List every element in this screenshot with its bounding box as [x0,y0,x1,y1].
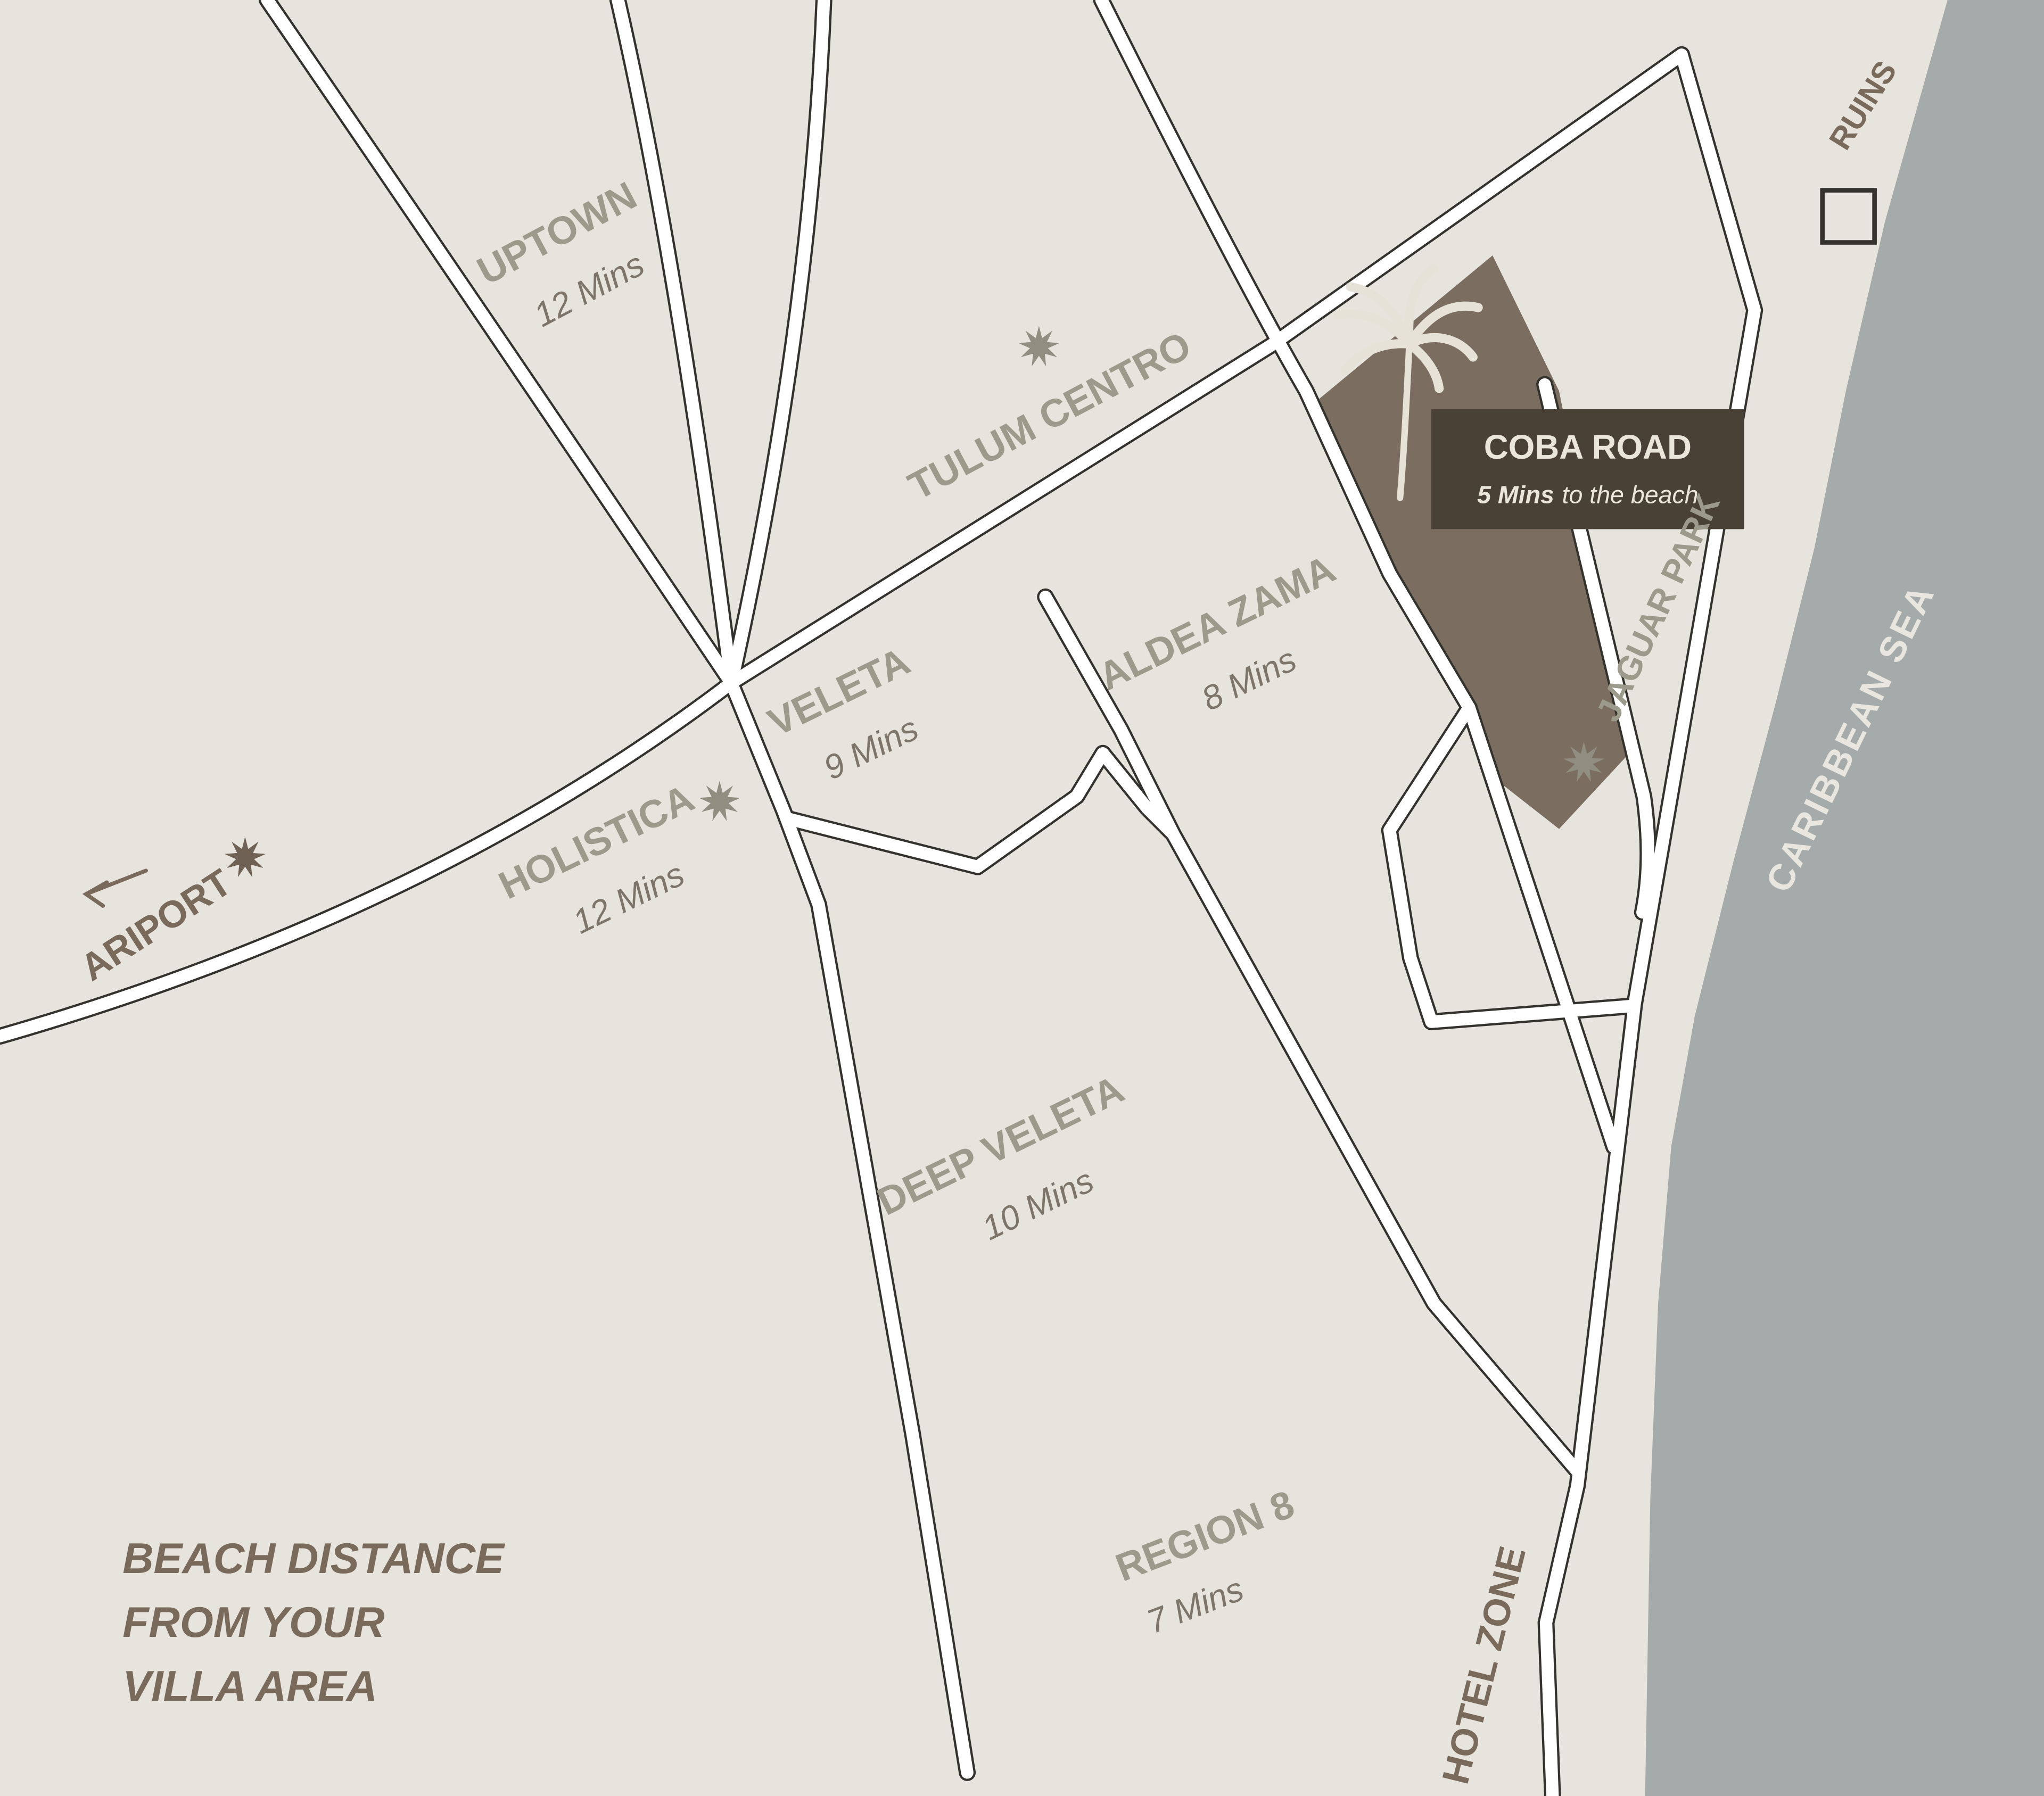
ruins-square-icon [1823,191,1875,243]
note-line-1: BEACH DISTANCE [122,1535,505,1583]
coba-road-subtitle: 5 Minsto the beach [1477,481,1698,508]
note-line-2: FROM YOUR [122,1599,384,1646]
map-canvas: COBA ROAD 5 Minsto the beach UPTOWN 12 M… [0,0,2044,1796]
coba-road-subtitle-mins: 5 Mins [1477,481,1554,508]
coba-road-title: COBA ROAD [1484,428,1692,466]
tulum-map-svg: COBA ROAD 5 Minsto the beach UPTOWN 12 M… [0,0,2044,1796]
coba-road-subtitle-rest: to the beach [1562,481,1699,508]
note-line-3: VILLA AREA [122,1662,377,1710]
